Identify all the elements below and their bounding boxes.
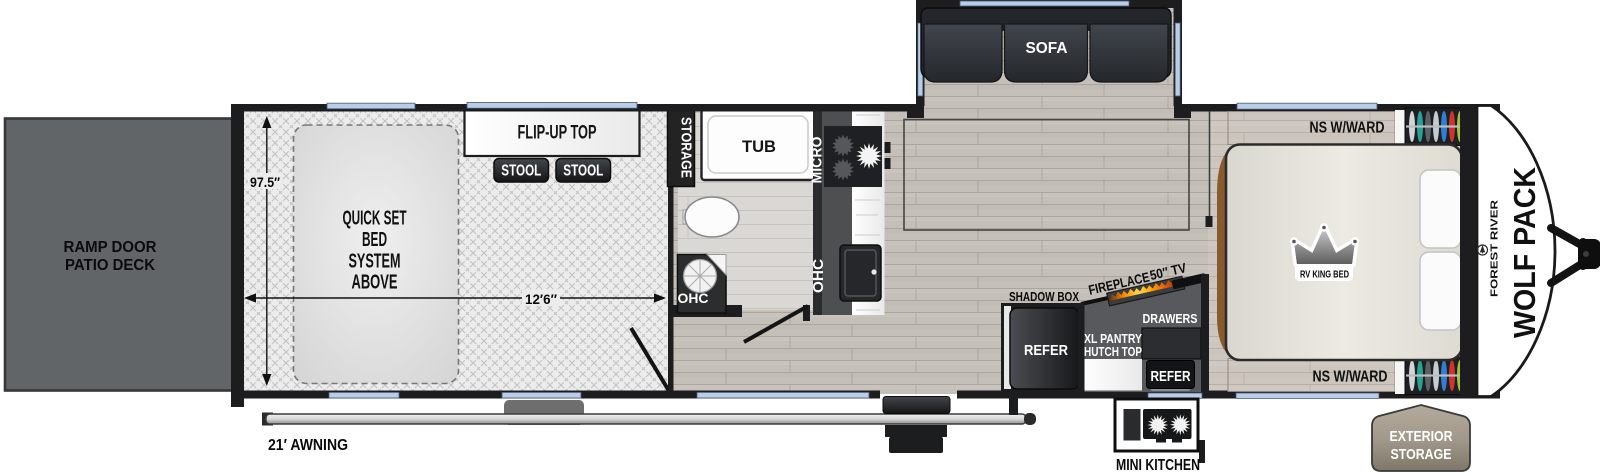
svg-text:QUICK SET: QUICK SET [343,208,407,230]
svg-text:MICRO: MICRO [809,136,826,183]
svg-text:STORAGE: STORAGE [678,117,694,178]
svg-text:RAMP DOOR: RAMP DOOR [64,239,157,256]
svg-text:XL PANTRY: XL PANTRY [1084,332,1143,346]
svg-text:12′6″: 12′6″ [525,291,557,307]
svg-text:REFER: REFER [1151,369,1191,385]
svg-text:SYSTEM: SYSTEM [349,250,401,272]
svg-text:TUB: TUB [742,137,776,156]
svg-text:DRAWERS: DRAWERS [1143,312,1198,326]
svg-text:OHC: OHC [678,290,709,306]
svg-text:ABOVE: ABOVE [352,272,398,294]
svg-text:NS W/WARD: NS W/WARD [1310,120,1385,137]
svg-text:REFER: REFER [1024,342,1068,359]
svg-text:SOFA: SOFA [1026,40,1068,57]
svg-text:BED: BED [362,229,387,251]
svg-text:EXTERIOR: EXTERIOR [1390,428,1453,445]
svg-text:97.5″: 97.5″ [250,174,280,190]
svg-text:RV KING BED: RV KING BED [1300,270,1349,281]
svg-text:FLIP-UP TOP: FLIP-UP TOP [518,123,597,144]
svg-text:MINI KITCHEN: MINI KITCHEN [1116,457,1200,474]
svg-text:21′ AWNING: 21′ AWNING [268,437,348,454]
svg-text:OHC: OHC [810,259,827,293]
svg-text:STORAGE: STORAGE [1391,446,1452,463]
svg-text:STOOL: STOOL [563,163,603,180]
svg-text:NS W/WARD: NS W/WARD [1313,369,1388,386]
svg-text:STOOL: STOOL [501,163,541,180]
svg-text:PATIO DECK: PATIO DECK [65,257,155,274]
svg-text:FOREST RIVER: FOREST RIVER [1489,199,1501,297]
svg-text:WOLF PACK: WOLF PACK [1507,166,1542,338]
svg-text:SHADOW BOX: SHADOW BOX [1009,290,1080,304]
svg-text:HUTCH TOP: HUTCH TOP [1084,345,1142,359]
